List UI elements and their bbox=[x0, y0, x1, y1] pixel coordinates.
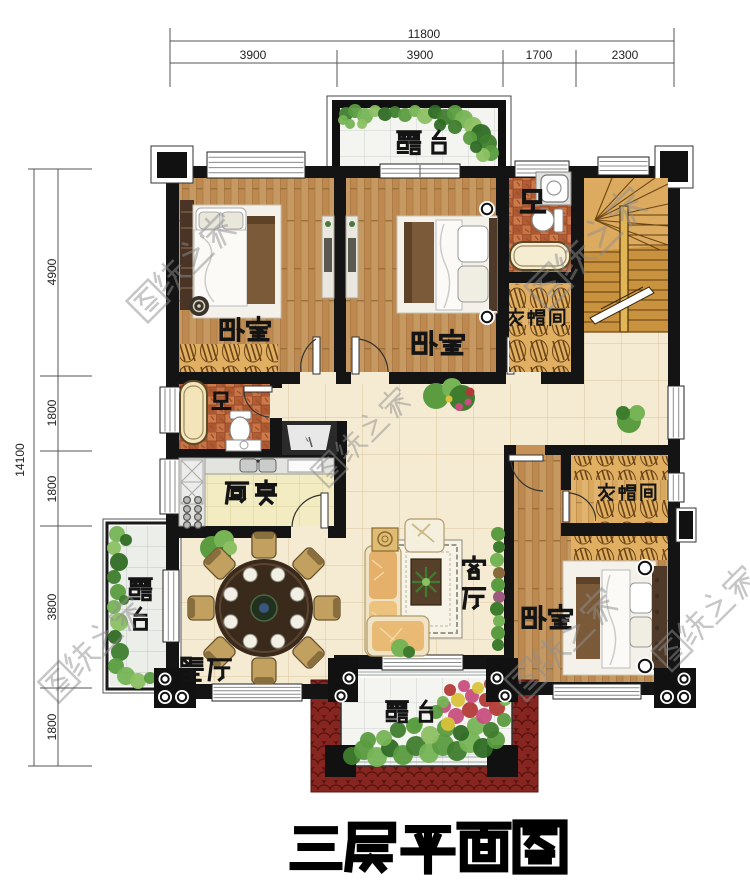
svg-text:3900: 3900 bbox=[407, 48, 434, 62]
svg-text:11800: 11800 bbox=[408, 27, 441, 41]
svg-text:14100: 14100 bbox=[13, 443, 27, 477]
svg-text:1800: 1800 bbox=[45, 713, 59, 740]
svg-text:1800: 1800 bbox=[45, 399, 59, 426]
svg-text:3900: 3900 bbox=[240, 48, 267, 62]
svg-text:4900: 4900 bbox=[45, 258, 59, 285]
svg-text:1700: 1700 bbox=[526, 48, 553, 62]
svg-text:2300: 2300 bbox=[612, 48, 639, 62]
svg-text:1800: 1800 bbox=[45, 475, 59, 502]
svg-text:3800: 3800 bbox=[45, 593, 59, 620]
